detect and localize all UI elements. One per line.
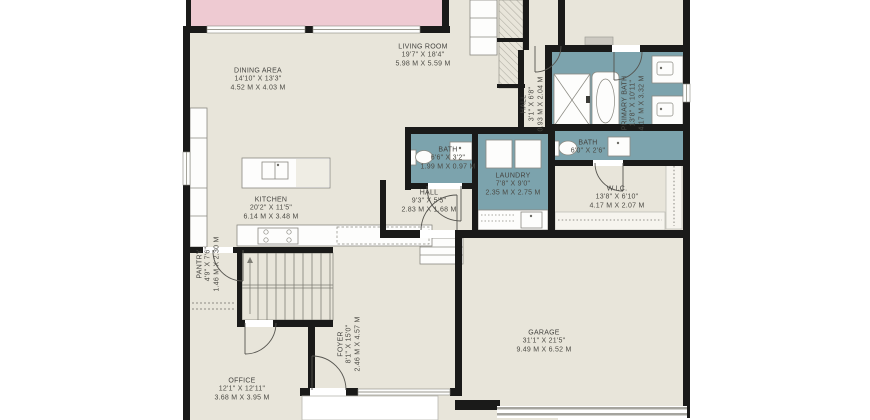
wc-sink-fixture (608, 137, 630, 156)
dresser-fixture (585, 37, 613, 45)
left-counter (190, 108, 207, 247)
deck-area (190, 0, 445, 27)
bath-sink-fixture (450, 142, 472, 160)
washer-fixture (486, 140, 512, 168)
toilet-fixture (416, 151, 433, 164)
dryer-fixture (515, 140, 541, 168)
floor-plan-canvas: DINING AREA 14'10" X 13'3" 4.52 M X 4.03… (0, 0, 870, 420)
stove-fixture (258, 228, 298, 244)
front-door-threshold (310, 388, 346, 396)
laundry-sink-fixture (521, 212, 542, 228)
front-porch (302, 396, 438, 420)
garage-door (497, 406, 687, 418)
bathtub-fixture (592, 72, 619, 130)
wc-toilet-fixture (559, 141, 577, 155)
utility-closet (470, 0, 497, 55)
floor-plan-drawing (0, 0, 870, 420)
